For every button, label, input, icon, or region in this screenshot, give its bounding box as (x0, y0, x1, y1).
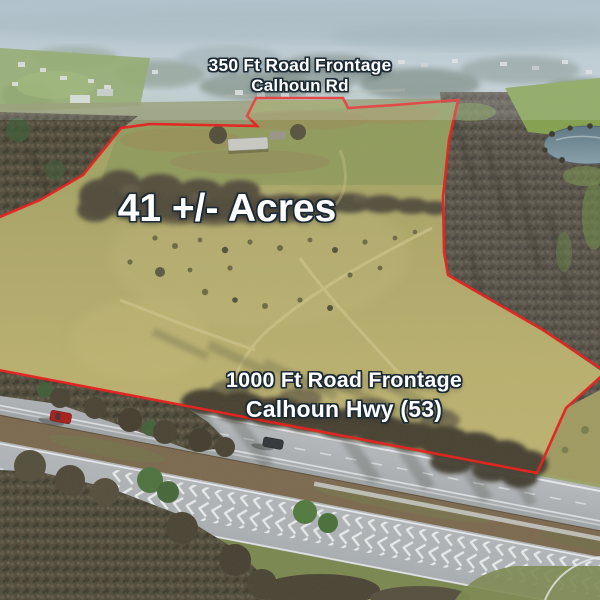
acreage-label: 41 +/- Acres (0, 185, 454, 233)
road-frontage-top-line2: Calhoun Rd (0, 76, 600, 97)
road-frontage-bottom-line1: 1000 Ft Road Frontage (88, 367, 600, 393)
road-frontage-top-line1: 350 Ft Road Frontage (0, 55, 600, 76)
road-frontage-top-label: 350 Ft Road Frontage Calhoun Rd (0, 55, 600, 97)
road-frontage-bottom-line2: Calhoun Hwy (53) (88, 395, 600, 423)
road-frontage-bottom-label: 1000 Ft Road Frontage Calhoun Hwy (53) (88, 367, 600, 423)
